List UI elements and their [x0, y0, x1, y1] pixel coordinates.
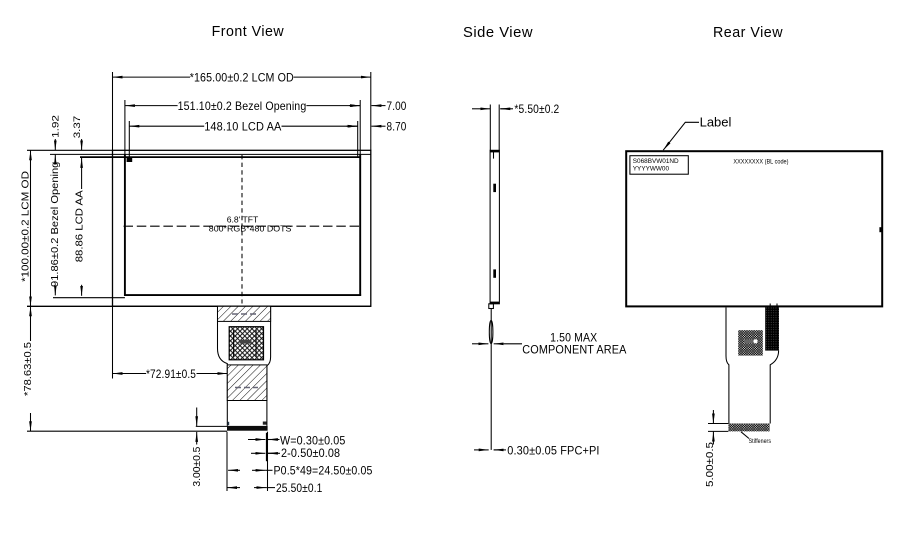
- svg-text:8.70: 8.70: [387, 120, 407, 134]
- svg-text:2-0.50±0.08: 2-0.50±0.08: [281, 446, 340, 460]
- svg-text:1.92: 1.92: [50, 115, 61, 138]
- svg-text:91.86±0.2 Bezel Opening: 91.86±0.2 Bezel Opening: [49, 161, 61, 286]
- svg-text:25.50±0.1: 25.50±0.1: [276, 481, 323, 495]
- svg-text:XXXXXXXX (BL code): XXXXXXXX (BL code): [733, 158, 788, 165]
- svg-text:*165.00±0.2 LCM OD: *165.00±0.2 LCM OD: [190, 71, 294, 85]
- svg-text:*100.00±0.2 LCM OD: *100.00±0.2 LCM OD: [20, 171, 32, 282]
- svg-text:COMPONENT AREA: COMPONENT AREA: [522, 342, 626, 356]
- svg-text:3.00±0.5: 3.00±0.5: [191, 446, 203, 486]
- svg-text:*78.63±0.5: *78.63±0.5: [22, 342, 34, 396]
- svg-text:Side View: Side View: [463, 25, 533, 41]
- svg-text:151.10±0.2 Bezel Opening: 151.10±0.2 Bezel Opening: [178, 99, 307, 113]
- svg-text:Stiffeners: Stiffeners: [749, 438, 771, 445]
- svg-text:5.00±0.5: 5.00±0.5: [704, 442, 716, 487]
- svg-text:3.37: 3.37: [72, 116, 83, 139]
- svg-text:Rear View: Rear View: [713, 25, 783, 41]
- svg-text:7.00: 7.00: [387, 99, 407, 113]
- svg-text:S068BVW01ND: S068BVW01ND: [633, 158, 679, 165]
- svg-text:148.10 LCD AA: 148.10 LCD AA: [204, 120, 281, 134]
- svg-text:*72.91±0.5: *72.91±0.5: [146, 367, 196, 381]
- svg-text:88.86 LCD AA: 88.86 LCD AA: [74, 190, 86, 262]
- svg-text:Label: Label: [700, 114, 732, 129]
- svg-text:0.30±0.05 FPC+PI: 0.30±0.05 FPC+PI: [507, 443, 599, 457]
- svg-text:P0.5*49=24.50±0.05: P0.5*49=24.50±0.05: [274, 464, 373, 478]
- svg-text:*5.50±0.2: *5.50±0.2: [514, 102, 559, 116]
- svg-text:Front View: Front View: [212, 24, 285, 40]
- svg-text:YYYYWW00: YYYYWW00: [633, 165, 670, 172]
- svg-text:800*RGB*480 DOTS: 800*RGB*480 DOTS: [209, 224, 292, 234]
